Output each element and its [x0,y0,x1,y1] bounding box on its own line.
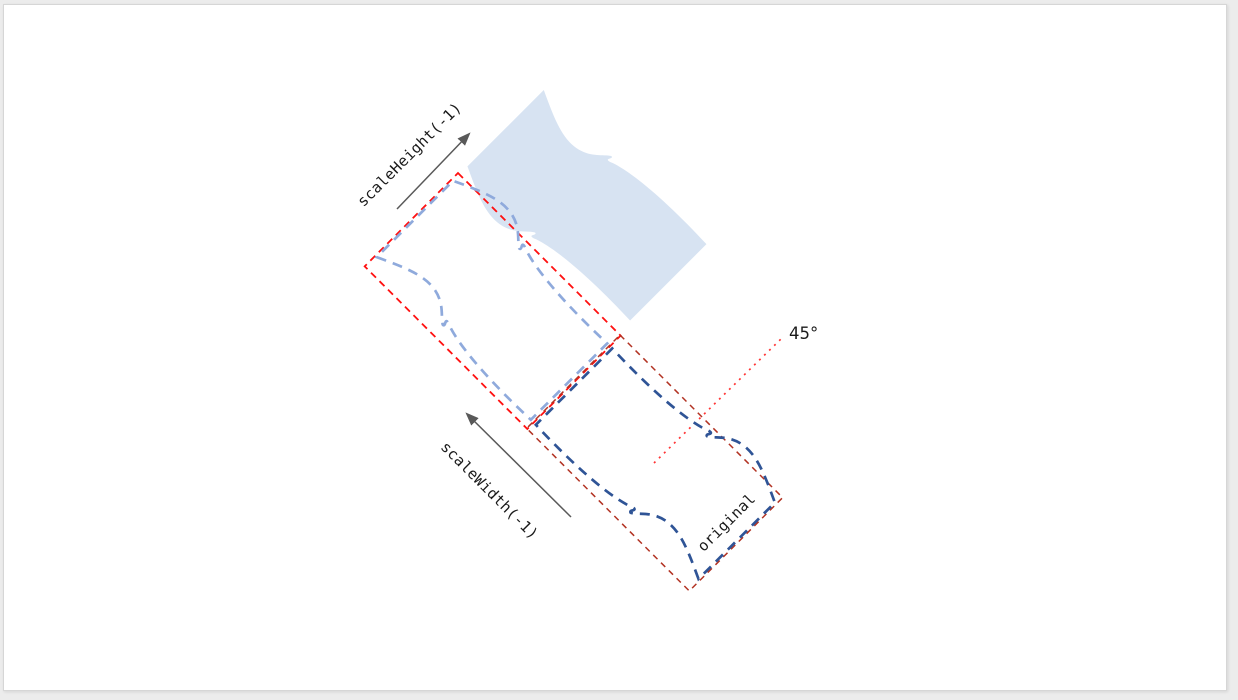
diagram-svg: scaleHeight(-1) scaleWidth(-1) original … [0,0,1238,700]
flag-result-filled-shape [454,85,707,338]
angle-label: 45° [789,324,818,343]
original-label: original [694,490,760,556]
angle-dotted-line [654,337,783,463]
scale-width-label: scaleWidth(-1) [437,438,542,543]
scale-width-arrow [467,414,571,517]
